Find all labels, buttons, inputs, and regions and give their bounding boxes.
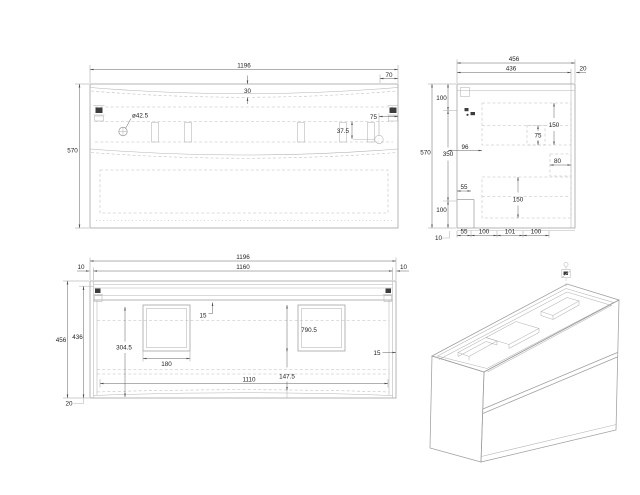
dim-side-overall-height: 570	[420, 150, 431, 157]
isometric-view	[430, 262, 619, 462]
faucet-hole	[119, 119, 131, 136]
iso-basin-cutouts	[458, 298, 579, 361]
dim-cutout-width: 180	[161, 361, 172, 368]
dim-plan-inner-depth: 436	[72, 334, 83, 341]
faucet-hole-right	[375, 135, 383, 143]
hinge-hardware-icon	[465, 108, 476, 116]
dim-side-base-gap: 10	[435, 235, 443, 242]
front-view: ø42.5 1196 70 30 570 37.5 75	[67, 62, 398, 228]
dim-front-overall-height: 570	[67, 148, 78, 155]
dim-plan-overall-width: 1196	[236, 254, 250, 261]
dim-bottom-seg-4: 100	[531, 229, 542, 236]
lower-drawer-box	[482, 177, 571, 218]
dim-side-bottom-segment: 100	[436, 207, 447, 214]
dim-hole-diameter: ø42.5	[132, 113, 149, 120]
dim-front-right-offset: 70	[385, 72, 393, 79]
top-view: 1196 1160 10 10 456 436 20 15 180 304.5	[56, 254, 409, 408]
mounting-bracket-icon-right	[388, 106, 398, 122]
dim-upper-recess: 75	[534, 133, 542, 140]
iso-drawer-gap-lower	[483, 357, 618, 414]
dim-front-overall-width: 1196	[237, 62, 251, 69]
dim-side-inner-depth: 436	[506, 65, 517, 72]
dim-inner-span: 1110	[242, 377, 256, 384]
iso-side-face	[430, 356, 484, 462]
hinge-bracket-icon-left	[94, 289, 103, 302]
dim-plan-inner-width: 1160	[236, 264, 250, 271]
iso-drawer-gap-upper	[483, 353, 618, 410]
dim-lower-drawer-height: 150	[513, 197, 524, 204]
cabinet-front-outline	[90, 84, 398, 228]
dim-plan-front-overhang: 20	[65, 401, 73, 408]
dim-front-recess: 55	[460, 184, 468, 191]
dim-cutout-front-offset: 147.5	[279, 374, 295, 381]
dim-bottom-seg-2: 100	[479, 229, 490, 236]
dim-plan-overall-depth: 456	[56, 337, 67, 344]
bracket-plate-icon	[461, 88, 470, 97]
dim-bottom-seg-1: 55	[460, 229, 468, 236]
side-bottom-dims: 55 100 101 100	[457, 229, 549, 238]
dim-side-offset: 15	[373, 350, 381, 357]
dim-upper-drawer-height: 150	[549, 122, 560, 129]
dim-back-clearance: 80	[554, 158, 562, 165]
dim-cutout-span: 790.5	[301, 327, 317, 334]
mounting-bracket-icon-left	[94, 106, 105, 122]
basin-cutout-left	[143, 305, 190, 351]
fastener-detail-icon	[562, 262, 570, 287]
dim-side-back-gap: 20	[580, 66, 588, 73]
dim-plan-left-gap: 10	[77, 264, 85, 271]
dim-hole-side-offset: 75	[370, 114, 378, 121]
dim-side-top-segment: 100	[436, 95, 447, 102]
dim-front-center-gap: 30	[244, 88, 252, 95]
iso-top-face	[432, 284, 619, 372]
vanity-cabinet-drawing: ø42.5 1196 70 30 570 37.5 75	[0, 0, 640, 495]
dim-bottom-seg-3: 101	[505, 229, 516, 236]
dim-rail-offset: 15	[199, 312, 207, 319]
dim-slide-setback: 96	[461, 144, 469, 151]
side-view: 456 436 20 570 100 350 100 10 150 75 96 …	[420, 56, 587, 242]
dim-side-overall-depth: 456	[509, 56, 520, 63]
cabinet-side-outline	[457, 84, 575, 228]
dim-plan-right-gap: 10	[400, 264, 408, 271]
hinge-bracket-icon-right	[383, 289, 392, 302]
technical-drawing-page: ø42.5 1196 70 30 570 37.5 75	[0, 0, 640, 495]
dim-side-middle-segment: 350	[443, 151, 454, 158]
dim-cutout-back-depth: 304.5	[116, 345, 132, 352]
dim-hole-down-offset: 37.5	[337, 128, 350, 135]
